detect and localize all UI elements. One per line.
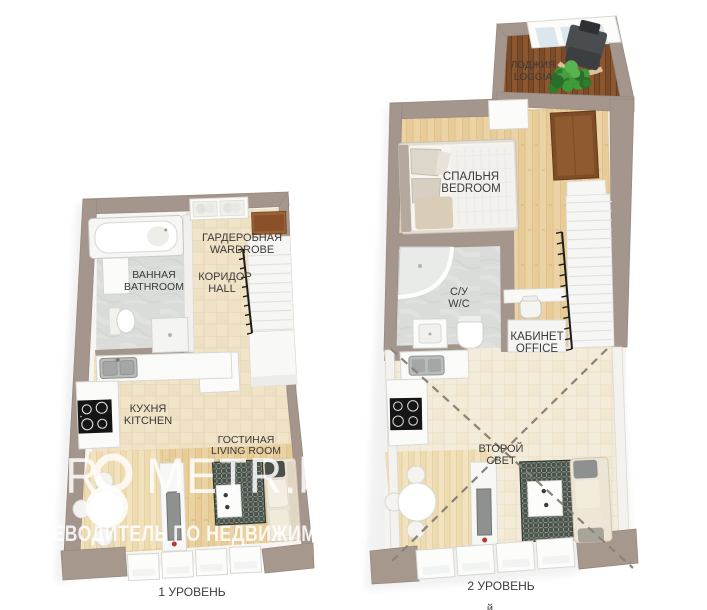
svg-text:1 УРОВЕНЬ: 1 УРОВЕНЬ <box>158 585 225 599</box>
svg-text:LOGGIA: LOGGIA <box>514 72 553 83</box>
svg-text:С/У: С/У <box>450 286 469 298</box>
svg-text:КОРИДОР: КОРИДОР <box>198 271 251 283</box>
svg-text:КАБИНЕТ: КАБИНЕТ <box>510 331 563 343</box>
svg-text:BEDROOM: BEDROOM <box>441 183 500 195</box>
svg-text:BATHROOM: BATHROOM <box>124 281 184 293</box>
svg-text:СВЕТ: СВЕТ <box>486 455 516 467</box>
svg-text:OFFICE: OFFICE <box>516 343 558 355</box>
svg-text:HALL: HALL <box>208 283 236 295</box>
svg-text:СПАЛЬНЯ: СПАЛЬНЯ <box>443 171 499 183</box>
svg-text:W/C: W/C <box>448 298 469 310</box>
svg-text:КУХНЯ: КУХНЯ <box>130 403 167 415</box>
svg-text:ВТОРОЙ: ВТОРОЙ <box>479 442 524 455</box>
svg-text:METR.by: METR.by <box>146 449 351 504</box>
svg-text:ПУТЕВОДИТЕЛЬ ПО НЕДВИЖИМОСТИ: ПУТЕВОДИТЕЛЬ ПО НЕДВИЖИМОСТИ <box>16 522 368 547</box>
svg-text:ВАННАЯ: ВАННАЯ <box>132 269 175 281</box>
svg-text:ЛОДЖИЯ: ЛОДЖИЯ <box>511 60 556 71</box>
svg-text:KITCHEN: KITCHEN <box>124 415 172 427</box>
svg-text:й: й <box>487 603 493 610</box>
svg-text:WARDROBE: WARDROBE <box>210 244 274 256</box>
svg-text:2 УРОВЕНЬ: 2 УРОВЕНЬ <box>467 579 534 593</box>
svg-text:ГАРДЕРОБНАЯ: ГАРДЕРОБНАЯ <box>202 232 282 244</box>
